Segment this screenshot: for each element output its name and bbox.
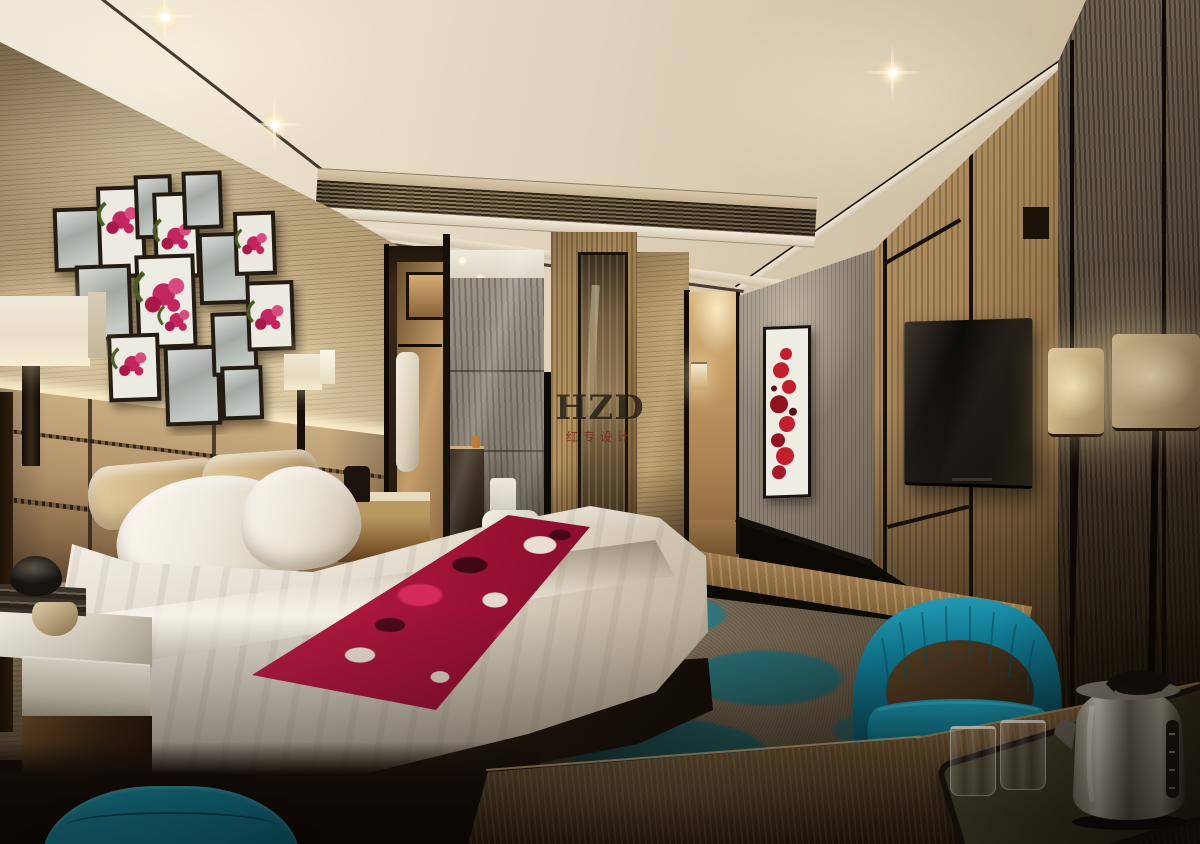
watermark: HZD 红专设计 [544,390,656,445]
drinking-glass [950,726,996,796]
electric-kettle [1048,662,1200,832]
floor-lamp-shade [1048,348,1104,437]
hotel-room-photo: HZD 红专设计 [0,0,1200,844]
light-flare-core [878,58,908,88]
glass-partition-frame [443,234,450,568]
hanging-bathrobe [396,352,419,472]
wall-mounted-tv [904,318,1032,489]
wall-lamp-bracket [297,388,305,452]
ceiling-spotlight [150,2,180,32]
drinking-glass [1000,720,1046,790]
wall-lamp-shade-right [284,354,322,390]
ottoman-seam [66,812,276,840]
ceiling-spotlight [878,58,908,88]
panel-accent-block [1023,207,1049,239]
panel-accent-line [887,505,969,529]
tv-bottom-trim [952,478,992,481]
ceiling-spotlight [260,110,290,140]
wardrobe-clothes-rail [398,344,442,347]
wardrobe-shelf-box [406,272,446,320]
wall-lamp-shade-right-side [320,350,335,384]
entry-corridor [689,292,739,562]
red-floral-painting [766,328,802,489]
decor-vessel-dark [10,556,62,596]
wall-lamp-shade-left-side [88,292,106,358]
red-floral-artwork [763,325,811,499]
light-flare-core [150,2,180,32]
wall-lamp-shade-left [0,296,90,366]
light-flare-core [260,110,290,140]
corridor-sconce-light [691,362,707,390]
watermark-subtitle: 红专设计 [544,428,656,445]
panel-accent-line [883,205,887,625]
floor-lamp-shade [1112,334,1200,431]
left-wall-edge-panel [0,392,13,732]
watermark-logo: HZD [544,390,656,426]
wall-lamp-bracket [22,360,40,466]
